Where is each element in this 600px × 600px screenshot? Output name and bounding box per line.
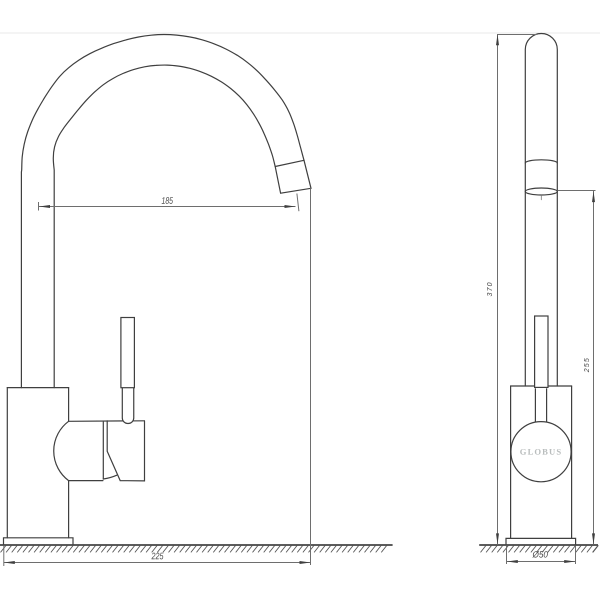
- svg-text:Ø50: Ø50: [532, 549, 548, 559]
- svg-text:185: 185: [161, 196, 173, 207]
- svg-text:370: 370: [487, 281, 494, 296]
- svg-text:GLOBUS: GLOBUS: [520, 447, 562, 457]
- svg-text:255: 255: [584, 357, 591, 373]
- svg-text:225: 225: [151, 551, 164, 562]
